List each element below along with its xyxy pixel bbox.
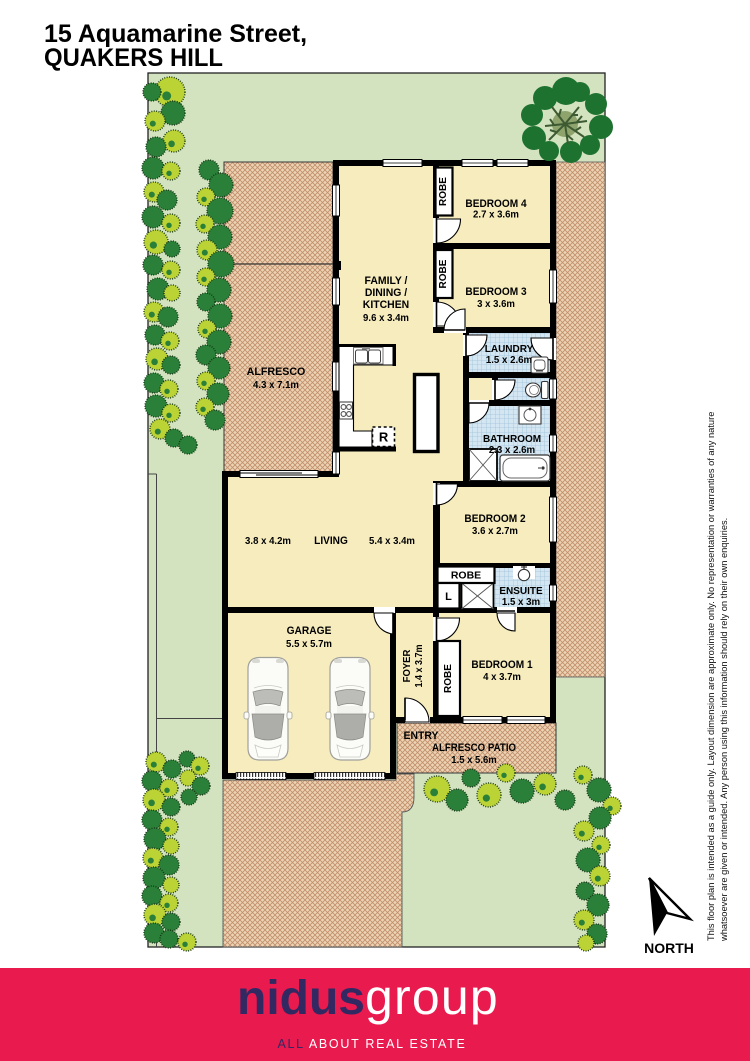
svg-text:This floor plan is intended as: This floor plan is intended as a guide o…	[706, 412, 716, 941]
svg-text:1.5 x 5.6m: 1.5 x 5.6m	[451, 755, 497, 766]
svg-text:ALFRESCO: ALFRESCO	[247, 366, 306, 378]
svg-text:1.4 x 3.7m: 1.4 x 3.7m	[414, 645, 426, 688]
svg-text:5.4 x 3.4m: 5.4 x 3.4m	[369, 536, 415, 547]
svg-text:3 x 3.6m: 3 x 3.6m	[477, 299, 515, 310]
svg-text:2.3 x 2.6m: 2.3 x 2.6m	[489, 445, 536, 456]
svg-text:BEDROOM 2: BEDROOM 2	[464, 513, 525, 525]
svg-text:whatsoever are given or intend: whatsoever are given or intended. Any pe…	[719, 518, 729, 942]
svg-text:BATHROOM: BATHROOM	[483, 434, 541, 445]
svg-text:ROBE: ROBE	[451, 570, 481, 582]
svg-text:ROBE: ROBE	[438, 177, 449, 206]
svg-text:1.5 x 2.6m: 1.5 x 2.6m	[486, 355, 533, 366]
svg-text:BEDROOM 3: BEDROOM 3	[465, 286, 526, 298]
svg-text:4 x 3.7m: 4 x 3.7m	[483, 672, 521, 683]
svg-text:BEDROOM 4: BEDROOM 4	[465, 198, 526, 210]
svg-text:1.5 x 3m: 1.5 x 3m	[502, 597, 541, 608]
svg-text:3.8 x 4.2m: 3.8 x 4.2m	[245, 536, 291, 547]
svg-text:ALL ABOUT REAL ESTATE: ALL ABOUT REAL ESTATE	[277, 1037, 466, 1051]
svg-text:BEDROOM 1: BEDROOM 1	[471, 659, 532, 671]
svg-text:DINING /: DINING /	[365, 287, 407, 299]
svg-text:9.6 x 3.4m: 9.6 x 3.4m	[363, 313, 409, 324]
svg-text:GARAGE: GARAGE	[287, 625, 332, 637]
svg-text:ROBE: ROBE	[443, 664, 454, 693]
svg-text:5.5 x 5.7m: 5.5 x 5.7m	[286, 639, 332, 650]
svg-text:FAMILY /: FAMILY /	[365, 275, 408, 287]
svg-text:QUAKERS HILL: QUAKERS HILL	[44, 44, 223, 72]
svg-text:ALFRESCO PATIO: ALFRESCO PATIO	[432, 743, 516, 755]
svg-text:LIVING: LIVING	[314, 535, 348, 547]
svg-text:ROBE: ROBE	[438, 259, 449, 288]
svg-text:R: R	[379, 430, 389, 445]
svg-text:ENTRY: ENTRY	[403, 730, 438, 742]
svg-text:2.7 x 3.6m: 2.7 x 3.6m	[473, 209, 519, 220]
svg-text:LAUNDRY: LAUNDRY	[485, 344, 534, 355]
svg-text:L: L	[445, 591, 452, 603]
svg-text:ENSUITE: ENSUITE	[499, 586, 543, 597]
svg-text:KITCHEN: KITCHEN	[363, 299, 410, 311]
svg-text:FOYER: FOYER	[402, 650, 413, 683]
svg-text:4.3 x 7.1m: 4.3 x 7.1m	[253, 380, 299, 391]
svg-text:nidusgroup: nidusgroup	[237, 969, 499, 1025]
svg-text:NORTH: NORTH	[644, 940, 694, 956]
svg-text:3.6 x 2.7m: 3.6 x 2.7m	[472, 526, 518, 537]
